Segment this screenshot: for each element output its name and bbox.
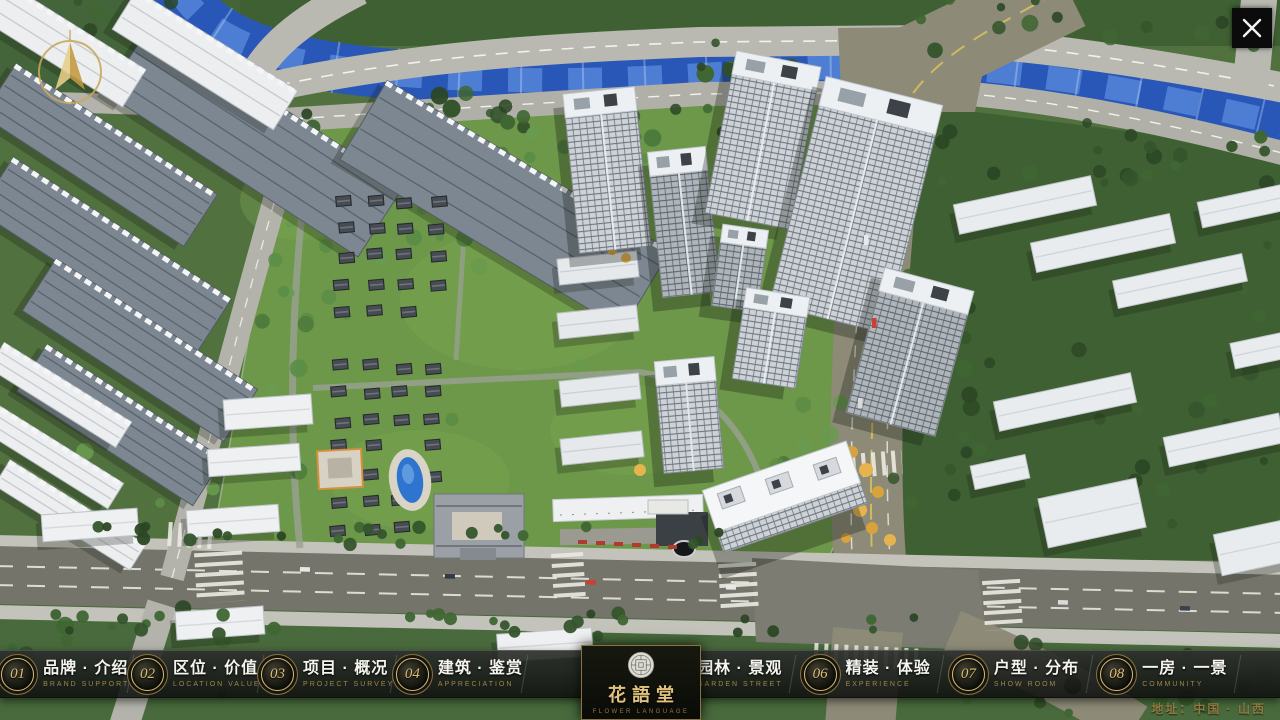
nav-item-project-survey[interactable]: 03 项目 · 概况 PROJECT SURVEY <box>261 651 394 697</box>
nav-label-en: COMMUNITY <box>1142 681 1203 688</box>
nav-item-brand-intro[interactable]: 01 品牌 · 介绍 BRAND SUPPORT <box>0 651 131 697</box>
nav-badge-02: 02 <box>131 658 164 691</box>
nav-label-en: EXPERIENCE <box>846 681 911 688</box>
nav-label-zh: 项目 · 概况 <box>303 661 388 677</box>
brand-logo-panel[interactable]: 花語堂 FLOWER LANGUAGE <box>581 645 701 720</box>
round-seal-icon <box>626 650 656 680</box>
nav-label-en: LOCATION VALUE <box>173 681 261 688</box>
brand-title: 花語堂 <box>602 681 680 707</box>
nav-badge-04: 04 <box>396 658 429 691</box>
x-close-icon <box>1241 17 1263 39</box>
nav-badge-06: 06 <box>804 658 837 691</box>
nav-label-zh: 户型 · 分布 <box>994 661 1079 677</box>
nav-item-floorplans[interactable]: 07 户型 · 分布 SHOW ROOM <box>941 651 1089 697</box>
nav-label-zh: 区位 · 价值 <box>173 661 258 677</box>
nav-label-zh: 建筑 · 鉴赏 <box>438 661 523 677</box>
nav-label-en: APPRECIATION <box>438 681 514 688</box>
nav-label-zh: 品牌 · 介绍 <box>43 661 128 677</box>
clubhouse-temple <box>434 494 524 560</box>
nav-badge-03: 03 <box>261 658 294 691</box>
nav-badge-01: 01 <box>1 658 34 691</box>
project-address: 地址：中国 · 山西 <box>1151 700 1266 717</box>
nav-item-interior-experience[interactable]: 06 精装 · 体验 EXPERIENCE <box>793 651 941 697</box>
nav-item-architecture[interactable]: 04 建筑 · 鉴赏 APPRECIATION <box>394 651 525 697</box>
aerial-masterplan-render[interactable] <box>0 0 1280 720</box>
nav-label-en: BRAND SUPPORT <box>43 681 129 688</box>
nav-label-zh: 园林 · 景观 <box>697 661 782 677</box>
nav-label-zh: 一房 · 一景 <box>1142 661 1227 677</box>
close-button[interactable] <box>1232 8 1272 48</box>
nav-item-location-value[interactable]: 02 区位 · 价值 LOCATION VALUE <box>131 651 262 697</box>
nav-label-en: GARDEN STREET <box>697 681 783 688</box>
nav-label-en: PROJECT SURVEY <box>303 681 394 688</box>
nav-group-left: 01 品牌 · 介绍 BRAND SUPPORT 02 区位 · 价值 LOCA… <box>0 651 525 697</box>
kindergarten <box>317 449 363 489</box>
nav-label-en: SHOW ROOM <box>994 681 1058 688</box>
compass-icon <box>28 28 112 112</box>
nav-badge-07: 07 <box>952 658 985 691</box>
nav-group-right: 05 园林 · 景观 GARDEN STREET 06 精装 · 体验 EXPE… <box>645 651 1280 697</box>
brand-subtitle: FLOWER LANGUAGE <box>593 709 690 715</box>
nav-label-zh: 精装 · 体验 <box>846 661 931 677</box>
nav-badge-08: 08 <box>1100 658 1133 691</box>
nav-item-room-view[interactable]: 08 一房 · 一景 COMMUNITY <box>1090 651 1238 697</box>
